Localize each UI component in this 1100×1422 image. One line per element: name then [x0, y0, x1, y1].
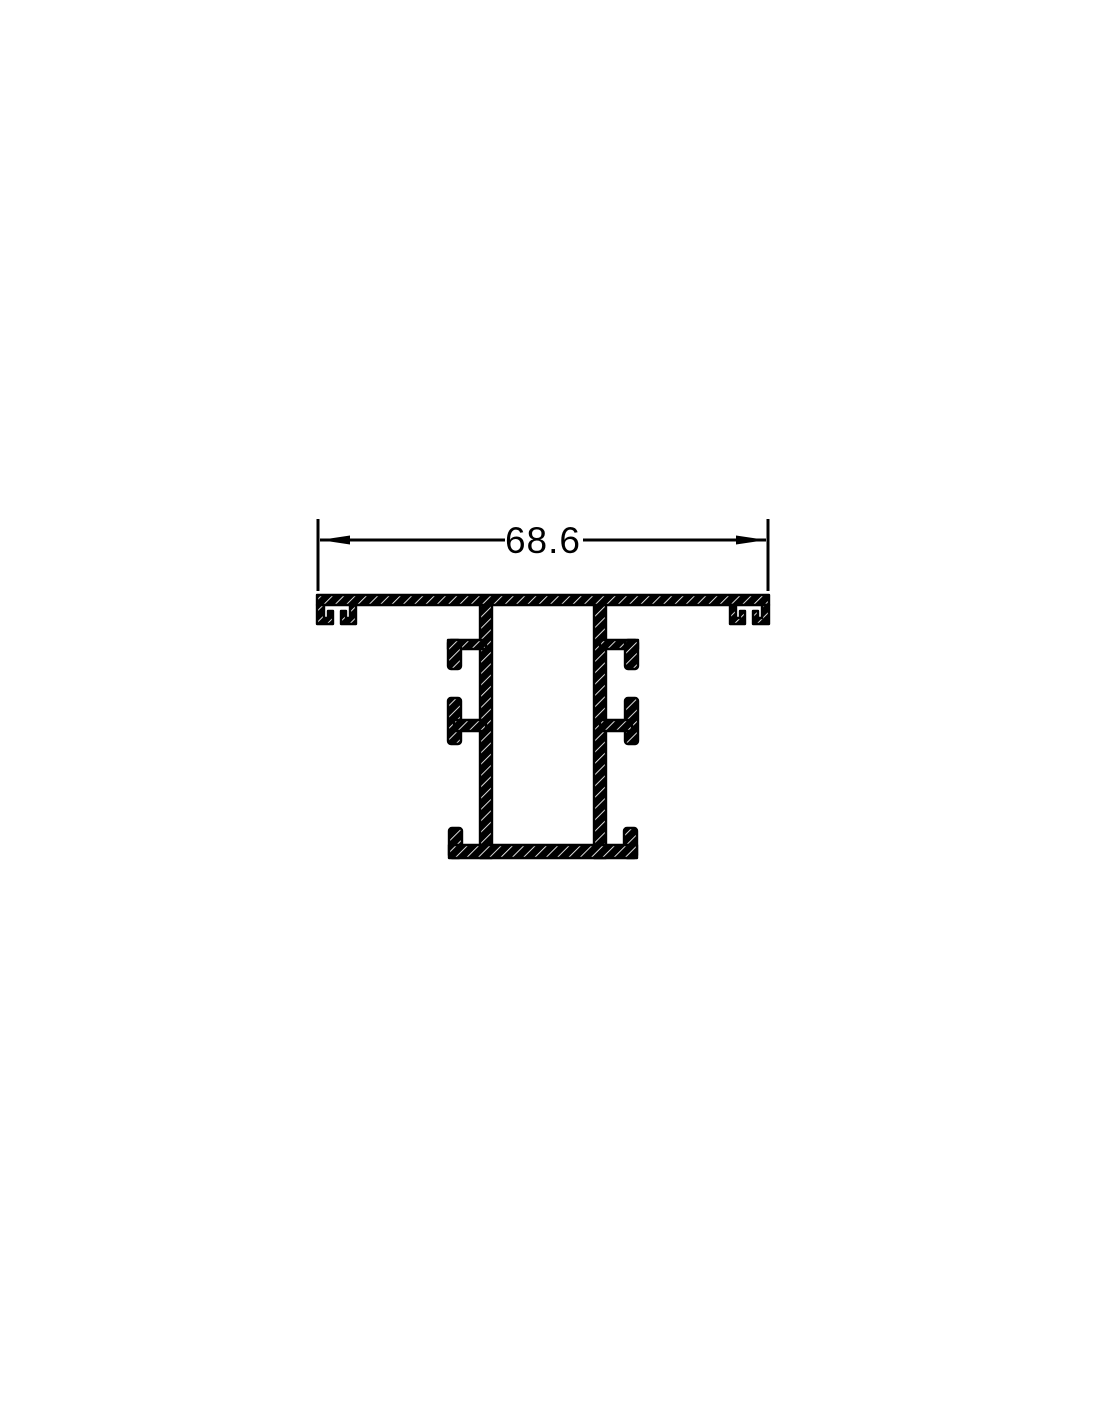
profile-gasket-hook-left-inner: [341, 605, 356, 624]
dimension-arrow-left: [320, 536, 350, 545]
profile-gasket-hook-left-outer: [317, 605, 333, 624]
profile-bottom-plate: [449, 845, 637, 858]
technical-drawing: 68.6: [0, 0, 1100, 1422]
profile-gasket-hook-right-inner: [730, 605, 745, 624]
dimension-68-6: 68.6: [318, 519, 768, 591]
dimension-label: 68.6: [505, 520, 581, 561]
drawing-page: 68.6: [0, 0, 1100, 1422]
profile-lower-hook-arm-left: [454, 720, 486, 731]
dimension-arrow-right: [736, 536, 766, 545]
profile-cross-section: [317, 595, 769, 858]
profile-upper-hook-bar-left: [448, 640, 461, 669]
profile-gasket-hook-right-outer: [753, 605, 769, 624]
profile-top-flange: [317, 595, 769, 605]
profile-upper-hook-bar-right: [625, 640, 638, 669]
profile-lower-hook-arm-right: [600, 720, 632, 731]
